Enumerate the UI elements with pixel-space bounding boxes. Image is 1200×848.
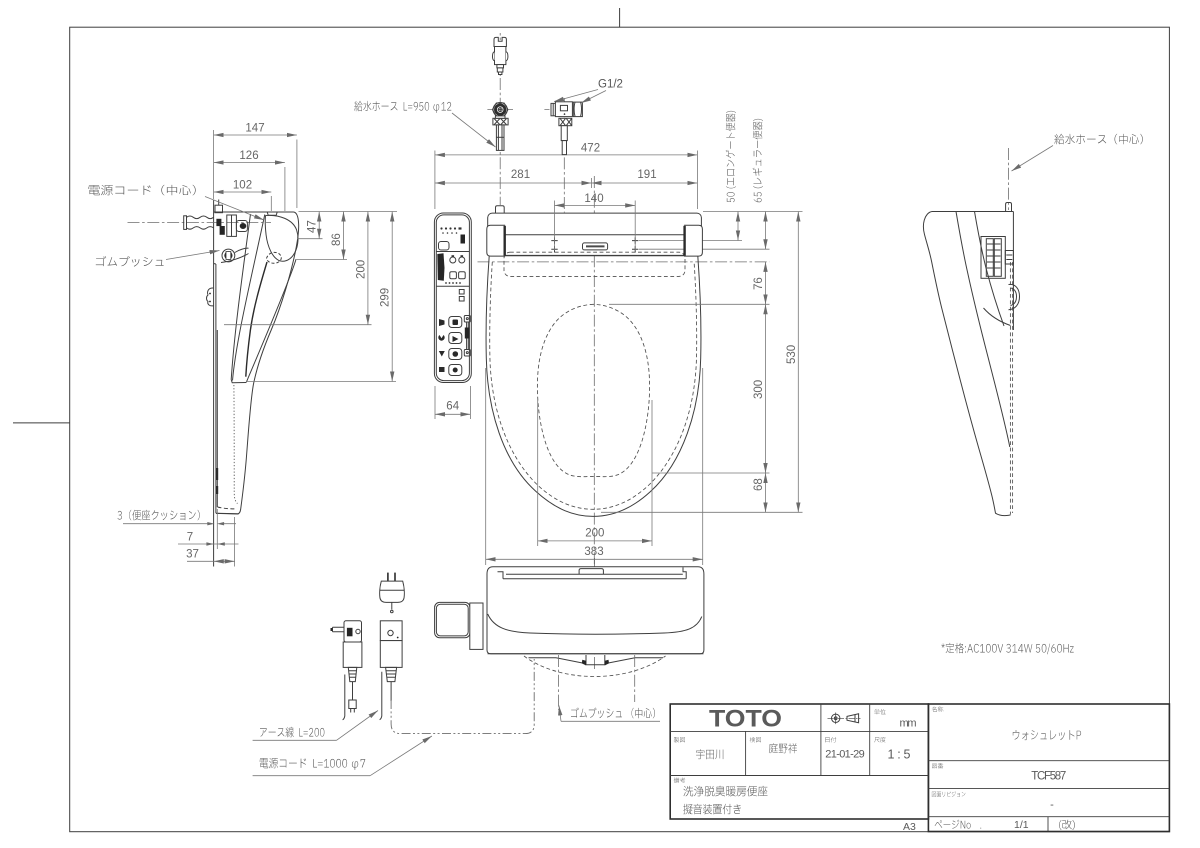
svg-text:300: 300: [753, 380, 765, 399]
svg-text:21-01-29: 21-01-29: [825, 749, 865, 761]
svg-text:140: 140: [584, 193, 603, 205]
svg-text:102: 102: [233, 180, 252, 192]
svg-text:37: 37: [186, 549, 199, 561]
svg-text:TCF587: TCF587: [1031, 771, 1066, 783]
svg-text:A3: A3: [903, 821, 916, 833]
svg-text:mm: mm: [900, 718, 917, 730]
svg-text:-: -: [1050, 799, 1054, 811]
svg-text:299: 299: [380, 288, 392, 307]
svg-text:281: 281: [511, 169, 530, 181]
svg-text:1 : 5: 1 : 5: [888, 748, 911, 762]
svg-text:47: 47: [307, 220, 319, 233]
svg-text:472: 472: [581, 143, 600, 155]
svg-text:64: 64: [446, 401, 459, 413]
svg-text:G1/2: G1/2: [598, 79, 623, 91]
svg-text:200: 200: [355, 260, 367, 279]
svg-text:147: 147: [245, 123, 264, 135]
svg-text:383: 383: [584, 546, 603, 558]
svg-text:126: 126: [239, 150, 258, 162]
svg-text:76: 76: [753, 277, 765, 290]
svg-text:1/1: 1/1: [1014, 819, 1029, 831]
svg-text:191: 191: [637, 169, 656, 181]
svg-text:530: 530: [786, 345, 798, 364]
svg-text:TOTO: TOTO: [709, 705, 782, 732]
svg-text:68: 68: [753, 478, 765, 491]
svg-text:86: 86: [331, 233, 343, 246]
svg-text:7: 7: [187, 532, 193, 544]
svg-text:200: 200: [585, 528, 604, 540]
